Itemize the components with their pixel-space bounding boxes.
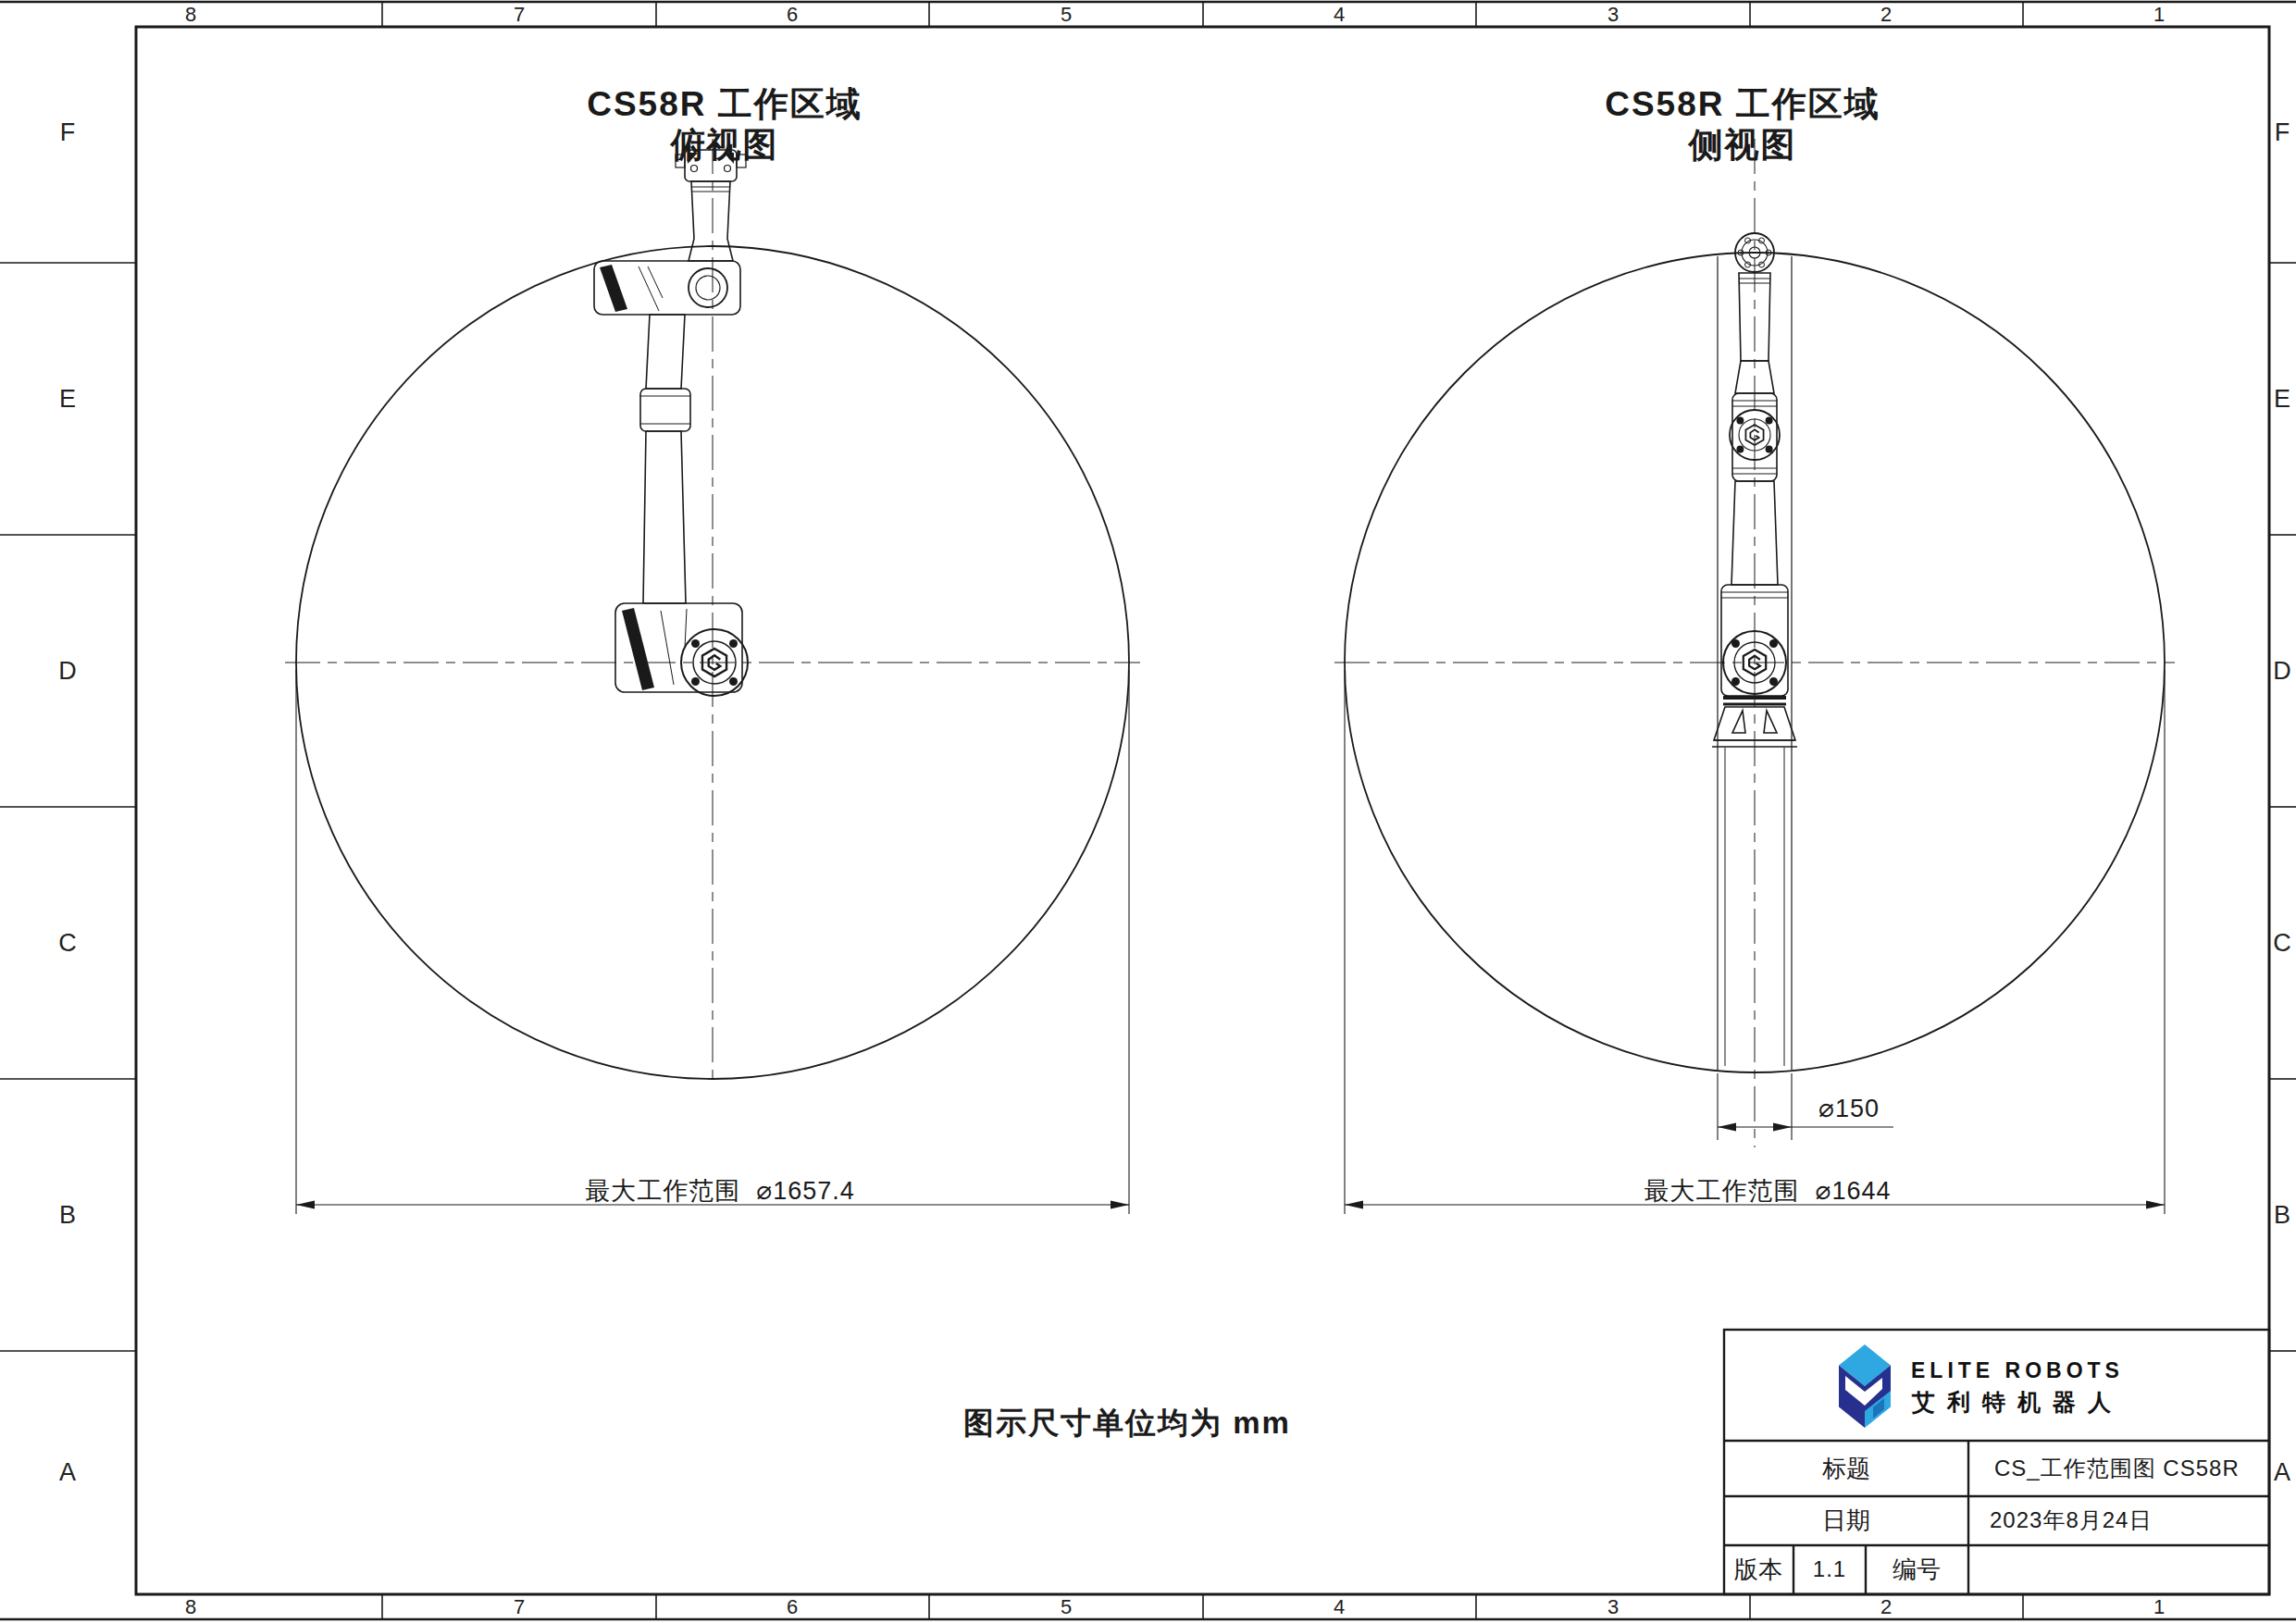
title-block-title-value: CS_工作范围图 CS58R xyxy=(1994,1454,2240,1483)
grid-col-label-top: 1 xyxy=(2153,3,2165,27)
grid-col-label-top: 7 xyxy=(514,3,525,27)
grid-row-label-left: F xyxy=(60,118,76,147)
dimension-value: 1657.4 xyxy=(773,1177,855,1205)
grid-row-label-left: A xyxy=(59,1458,76,1487)
title-block-title-label: 标题 xyxy=(1822,1453,1870,1485)
grid-row-label-right: C xyxy=(2273,929,2291,958)
drawing-sheet: 8 7 6 5 4 3 2 1 8 7 6 5 4 3 2 1 F E D C … xyxy=(0,0,2296,1623)
grid-col-label-bottom: 8 xyxy=(185,1595,196,1619)
grid-col-label-top: 3 xyxy=(1607,3,1619,27)
grid-col-label-bottom: 4 xyxy=(1334,1595,1345,1619)
grid-col-label-bottom: 3 xyxy=(1607,1595,1619,1619)
grid-row-label-left: E xyxy=(59,385,76,414)
diameter-symbol: ⌀ xyxy=(1818,1094,1835,1122)
grid-row-label-left: D xyxy=(58,657,77,686)
dimension-label: 最大工作范围 xyxy=(1644,1177,1800,1205)
grid-col-label-top: 2 xyxy=(1880,3,1892,27)
grid-col-label-bottom: 5 xyxy=(1061,1595,1072,1619)
robot-arm-side-view xyxy=(1712,233,1797,747)
grid-row-label-left: C xyxy=(58,929,77,958)
side-view-drawing xyxy=(1334,139,2175,1214)
grid-col-label-top: 6 xyxy=(787,3,798,27)
robot-arm-top-view xyxy=(594,150,748,696)
dimension-value: 150 xyxy=(1835,1095,1880,1122)
side-view-subtitle: 侧视图 xyxy=(1689,122,1797,168)
side-view-dimension-text: 最大工作范围 ⌀1644 xyxy=(1644,1174,1892,1208)
elite-robots-logo xyxy=(1839,1344,1891,1428)
title-block-date-value: 2023年8月24日 xyxy=(1990,1505,2152,1535)
grid-col-label-bottom: 2 xyxy=(1880,1595,1892,1619)
grid-row-label-right: D xyxy=(2273,657,2291,686)
brand-name-cn: 艾利特机器人 xyxy=(1912,1387,2123,1418)
grid-row-label-left: B xyxy=(59,1201,76,1230)
top-view-drawing xyxy=(285,139,1140,1214)
grid-row-label-right: E xyxy=(2274,385,2290,414)
grid-col-label-bottom: 7 xyxy=(514,1595,525,1619)
dimension-value: 1644 xyxy=(1831,1177,1891,1205)
dimension-label: 最大工作范围 xyxy=(585,1177,740,1205)
base-diameter-text: ⌀150 xyxy=(1818,1093,1880,1123)
top-view-title: CS58R 工作区域 xyxy=(587,81,863,128)
units-note: 图示尺寸单位均为 mm xyxy=(963,1403,1291,1444)
side-view-title: CS58R 工作区域 xyxy=(1605,81,1880,128)
grid-col-label-bottom: 1 xyxy=(2153,1595,2165,1619)
diameter-symbol: ⌀ xyxy=(1816,1176,1832,1205)
grid-row-label-right: A xyxy=(2274,1458,2290,1487)
title-block-version-label: 版本 xyxy=(1734,1554,1782,1586)
grid-col-label-bottom: 6 xyxy=(787,1595,798,1619)
top-view-dimension-text: 最大工作范围 ⌀1657.4 xyxy=(585,1174,854,1208)
title-block-version-value: 1.1 xyxy=(1813,1556,1846,1582)
diameter-symbol: ⌀ xyxy=(756,1176,773,1205)
top-view-subtitle: 俯视图 xyxy=(671,122,779,168)
grid-col-label-top: 8 xyxy=(185,3,196,27)
grid-col-label-top: 5 xyxy=(1061,3,1072,27)
grid-row-label-right: F xyxy=(2275,118,2290,147)
title-block-number-label: 编号 xyxy=(1893,1554,1941,1586)
grid-row-label-right: B xyxy=(2274,1201,2290,1230)
brand-name-en: ELITE ROBOTS xyxy=(1911,1358,2124,1383)
title-block-date-label: 日期 xyxy=(1822,1505,1870,1537)
grid-col-label-top: 4 xyxy=(1334,3,1345,27)
